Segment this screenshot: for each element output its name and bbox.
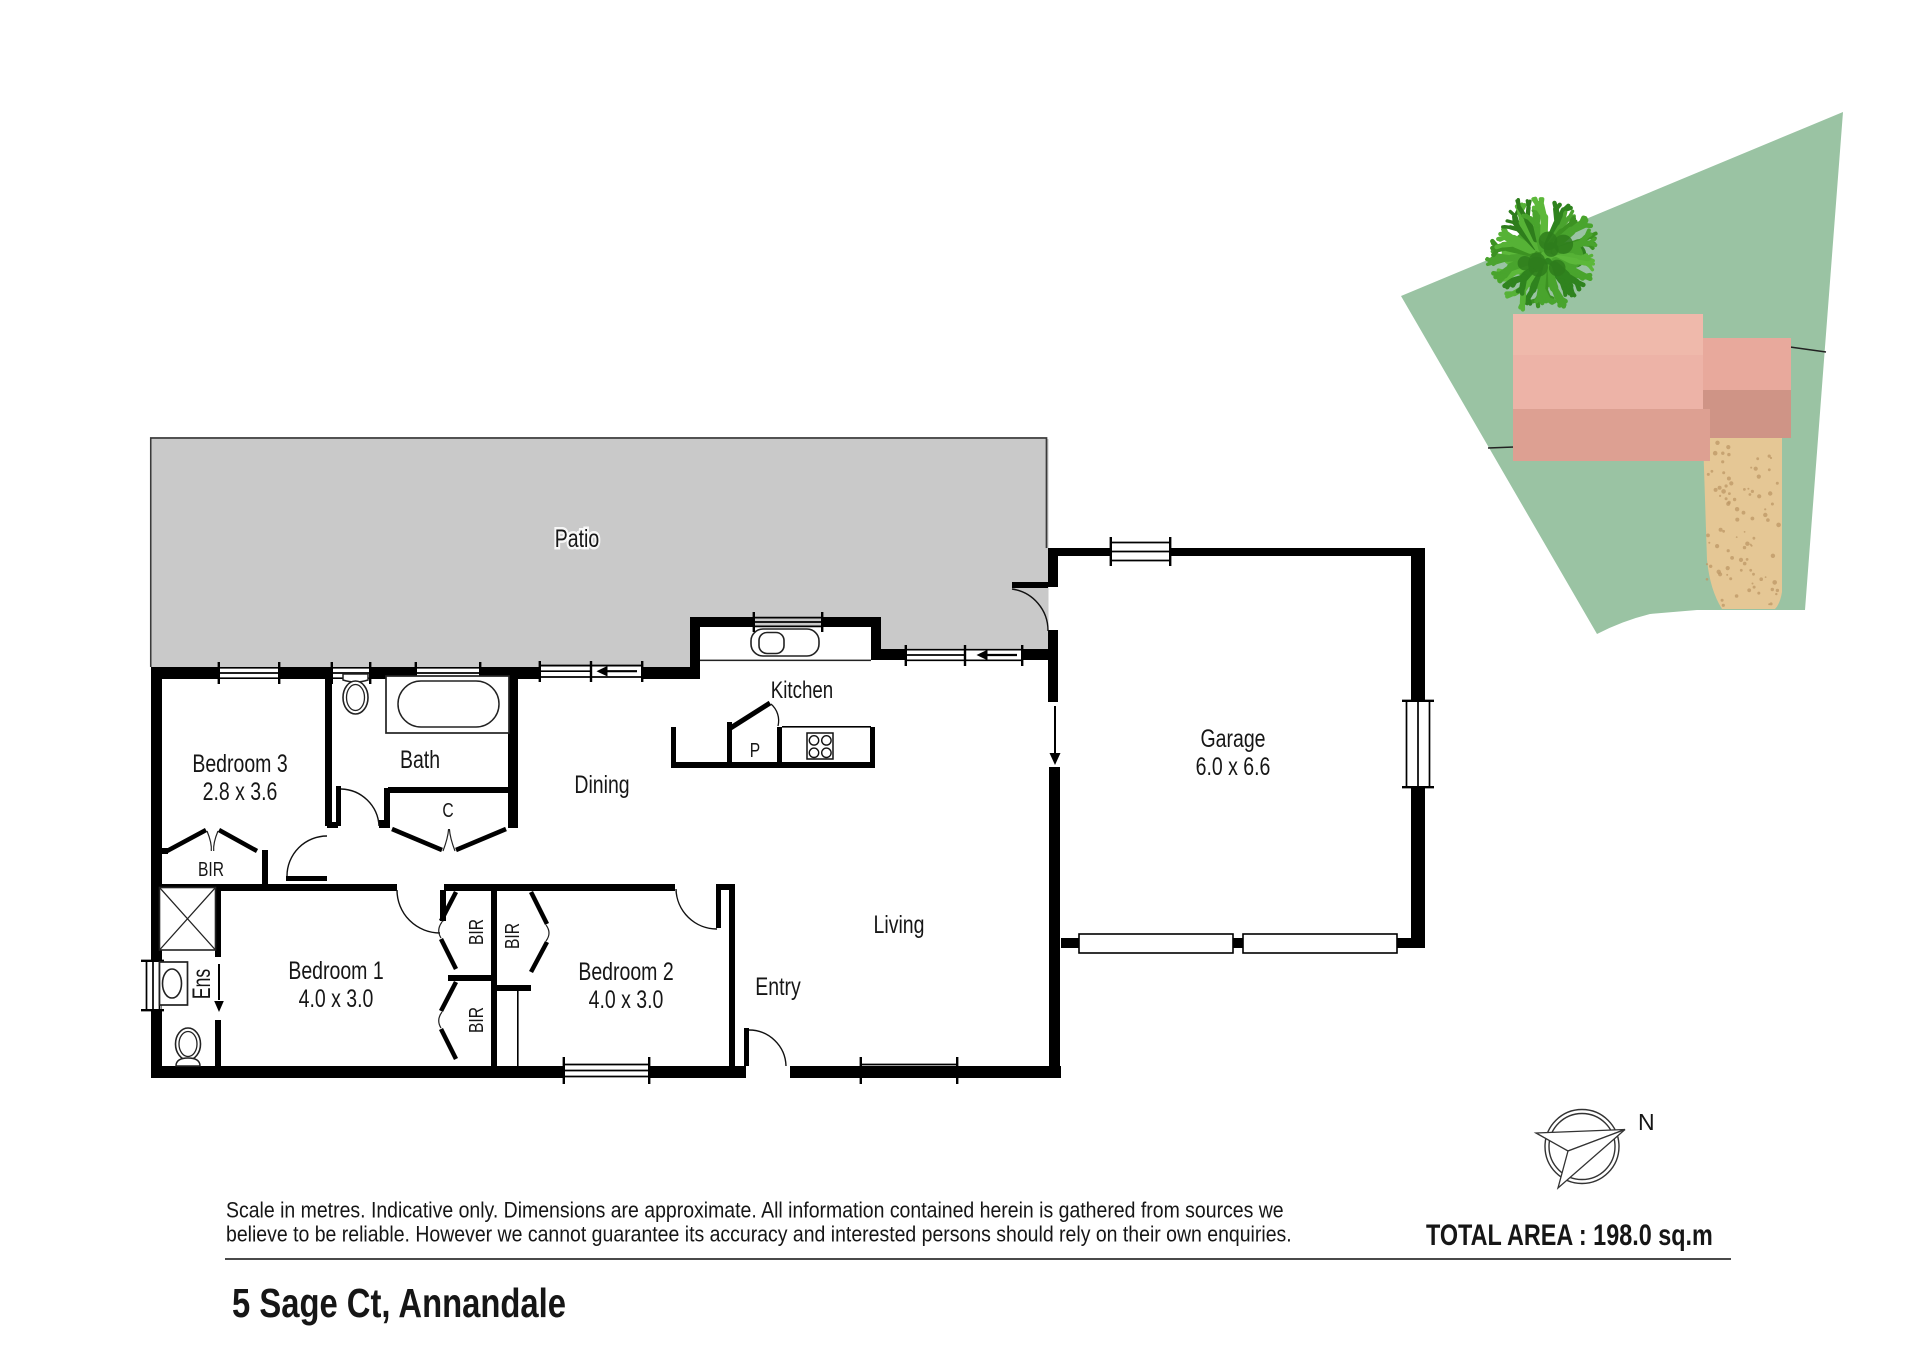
svg-text:C: C	[442, 799, 453, 821]
svg-text:Bath: Bath	[400, 746, 440, 774]
svg-text:BIR: BIR	[465, 919, 487, 945]
svg-text:Dining: Dining	[574, 771, 629, 799]
svg-text:BIR: BIR	[465, 1007, 487, 1033]
svg-text:6.0 x 6.6: 6.0 x 6.6	[1196, 753, 1271, 781]
svg-text:4.0 x 3.0: 4.0 x 3.0	[299, 985, 374, 1013]
svg-text:4.0 x 3.0: 4.0 x 3.0	[589, 986, 664, 1014]
svg-text:Garage: Garage	[1200, 725, 1265, 753]
svg-text:BIR: BIR	[501, 923, 523, 949]
svg-text:Bedroom 2: Bedroom 2	[578, 958, 673, 986]
svg-text:5 Sage Ct, Annandale: 5 Sage Ct, Annandale	[232, 1279, 566, 1325]
svg-text:N: N	[1638, 1109, 1655, 1135]
svg-text:Ens: Ens	[187, 969, 216, 999]
svg-text:TOTAL AREA : 198.0 sq.m: TOTAL AREA : 198.0 sq.m	[1426, 1218, 1713, 1251]
svg-text:Scale in metres. Indicative on: Scale in metres. Indicative only. Dimens…	[226, 1198, 1284, 1222]
svg-text:believe to be reliable. Howeve: believe to be reliable. However we canno…	[226, 1222, 1292, 1246]
svg-text:Kitchen: Kitchen	[771, 677, 833, 704]
svg-text:Living: Living	[874, 911, 925, 939]
svg-text:Patio: Patio	[555, 525, 599, 553]
svg-text:2.8 x 3.6: 2.8 x 3.6	[203, 778, 278, 806]
svg-text:Entry: Entry	[755, 973, 801, 1001]
svg-text:P: P	[750, 739, 760, 761]
svg-text:Bedroom 3: Bedroom 3	[192, 750, 287, 778]
svg-text:Bedroom 1: Bedroom 1	[288, 957, 383, 985]
svg-text:BIR: BIR	[198, 858, 224, 880]
